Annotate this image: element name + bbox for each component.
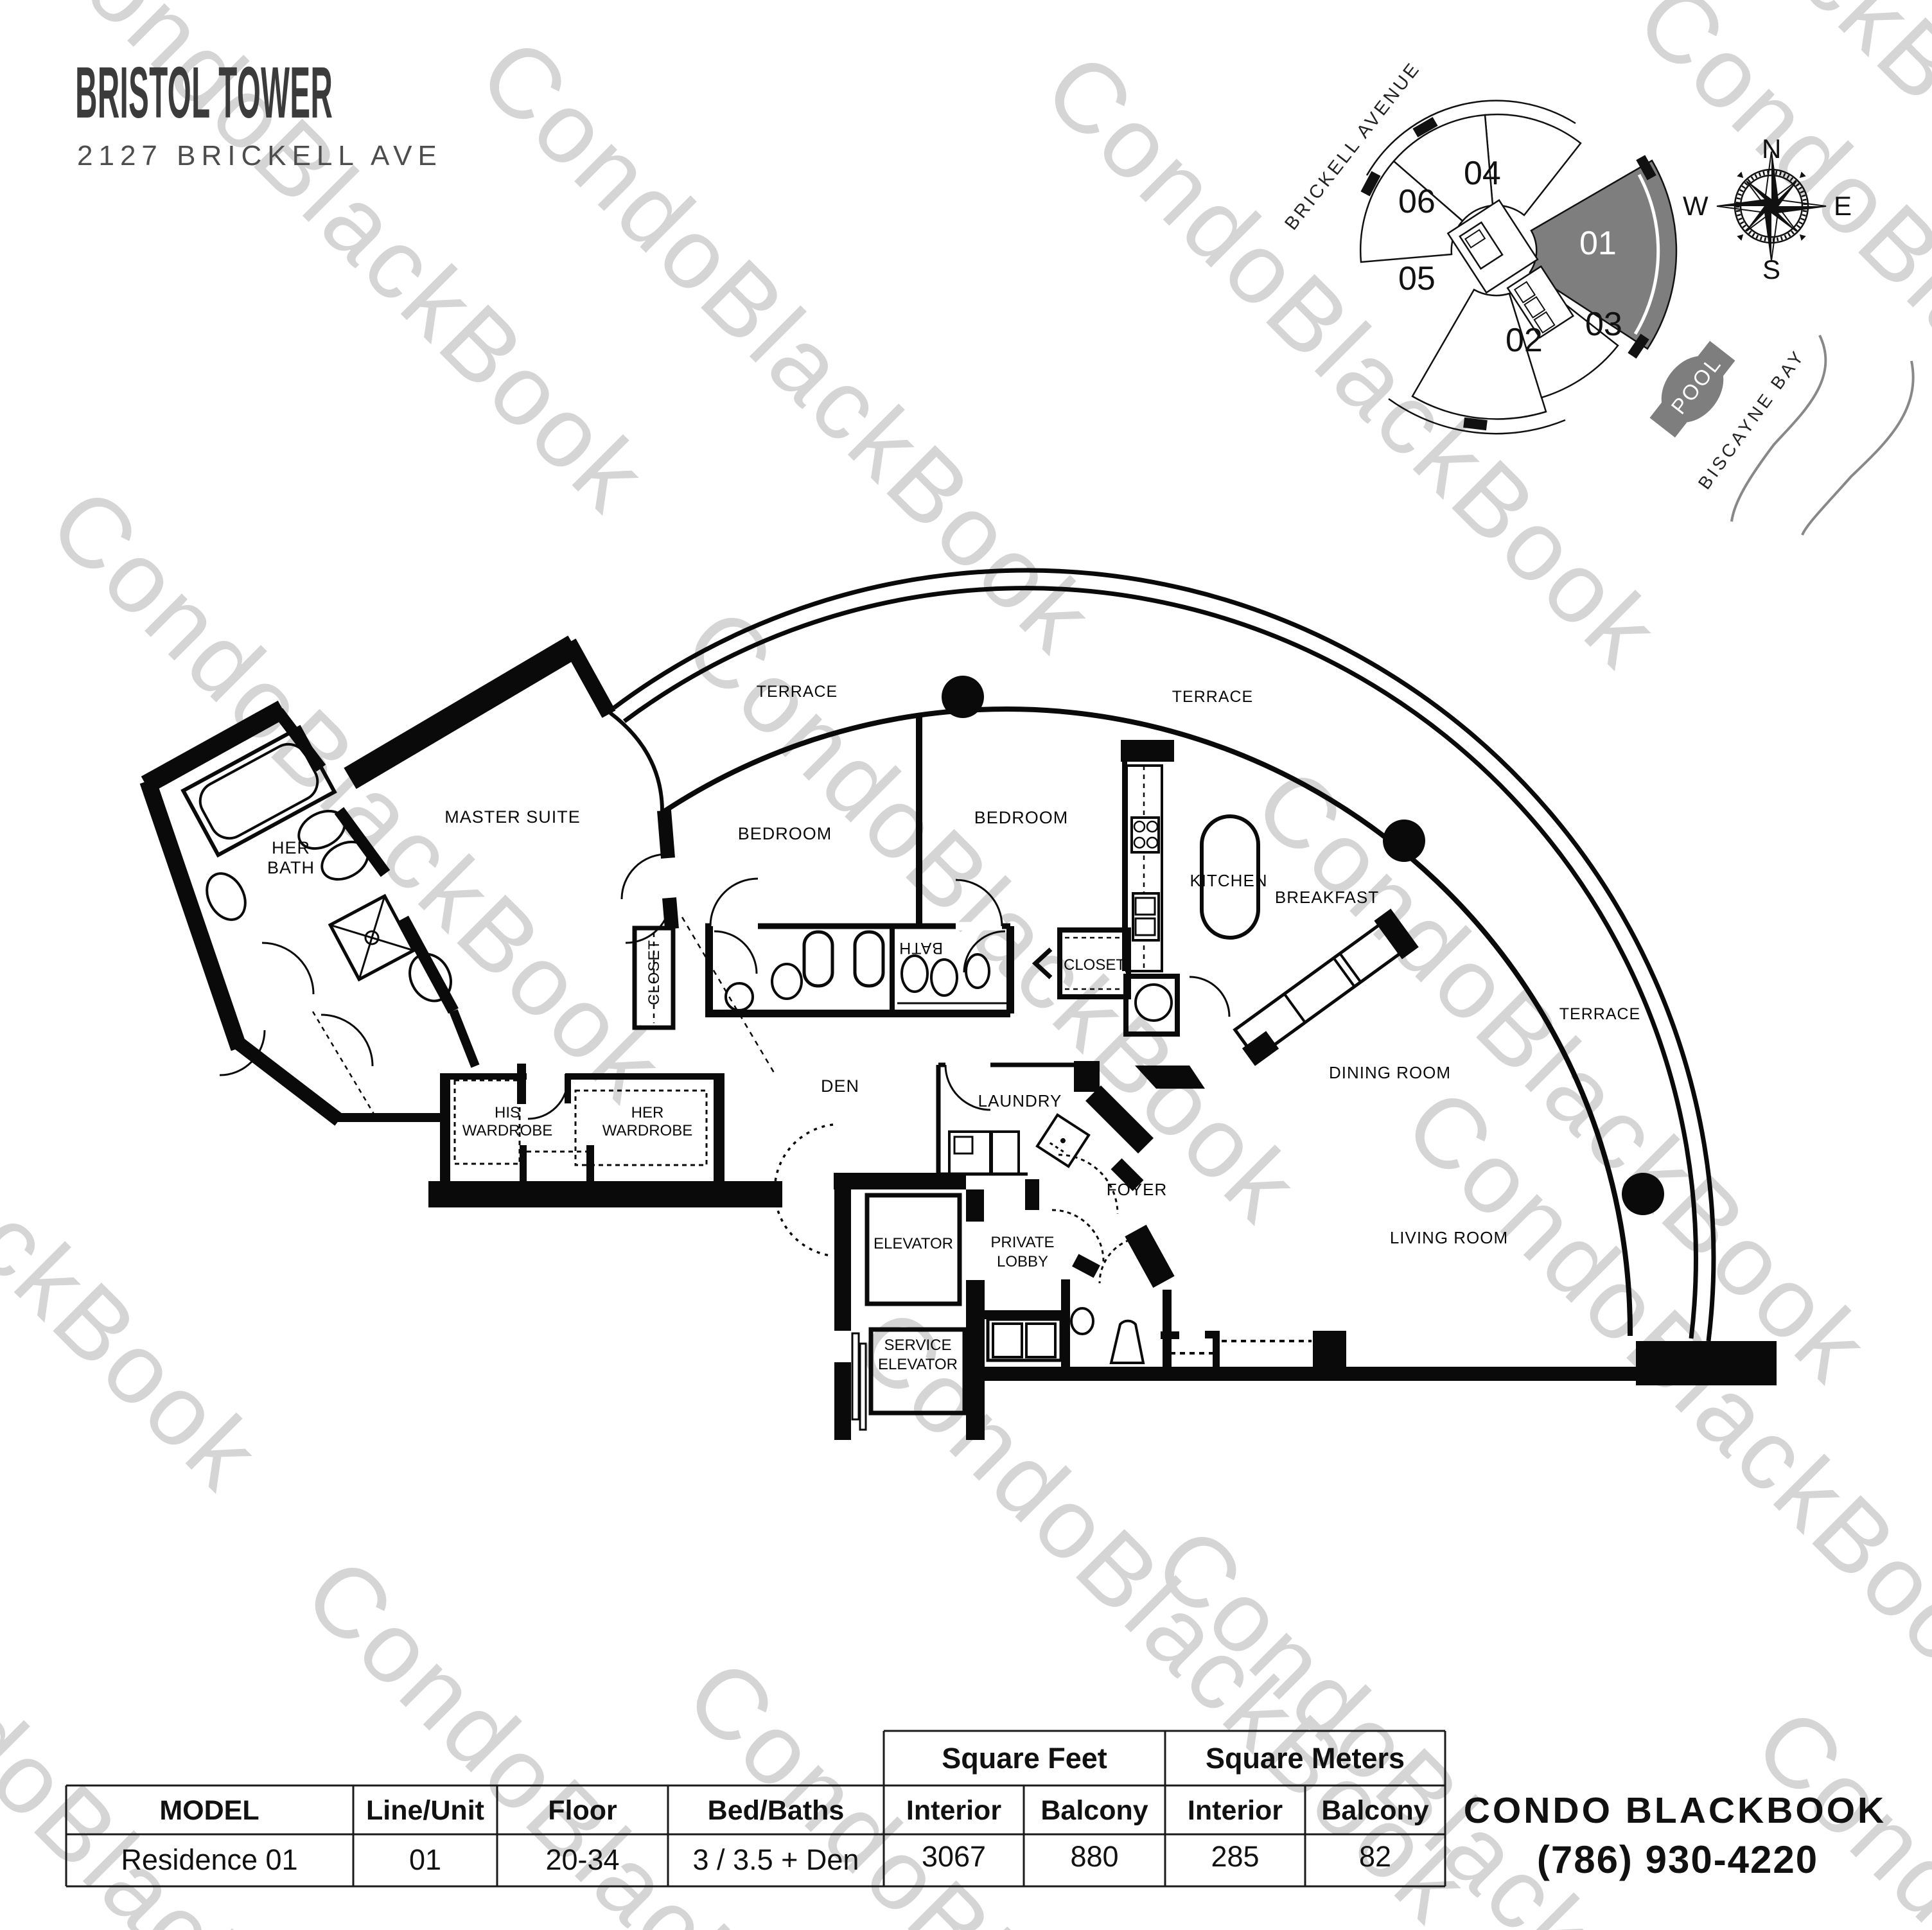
svg-text:BRISTOL TOWER: BRISTOL TOWER — [75, 53, 333, 134]
svg-text:01: 01 — [1579, 225, 1617, 262]
svg-text:05: 05 — [1398, 260, 1436, 297]
svg-text:06: 06 — [1398, 183, 1436, 220]
svg-text:Line/Unit: Line/Unit — [366, 1795, 484, 1826]
svg-text:BEDROOM: BEDROOM — [738, 824, 832, 843]
svg-text:ELEVATOR: ELEVATOR — [874, 1235, 953, 1252]
svg-text:LOBBY: LOBBY — [997, 1253, 1048, 1270]
svg-text:Floor: Floor — [548, 1795, 617, 1826]
svg-text:Balcony: Balcony — [1321, 1795, 1428, 1826]
svg-text:Interior: Interior — [1188, 1795, 1283, 1826]
svg-text:MASTER SUITE: MASTER SUITE — [444, 807, 581, 827]
svg-text:LIVING ROOM: LIVING ROOM — [1390, 1228, 1508, 1247]
svg-text:DEN: DEN — [821, 1076, 859, 1096]
svg-text:CLOSET: CLOSET — [1064, 956, 1125, 974]
svg-text:Interior: Interior — [906, 1795, 1001, 1826]
svg-text:CONDO BLACKBOOK: CONDO BLACKBOOK — [1464, 1790, 1886, 1831]
svg-text:01: 01 — [409, 1843, 441, 1876]
svg-text:04: 04 — [1464, 155, 1501, 192]
svg-text:3 / 3.5 + Den: 3 / 3.5 + Den — [693, 1843, 859, 1876]
svg-text:PRIVATE: PRIVATE — [990, 1234, 1054, 1251]
svg-text:HIS: HIS — [495, 1104, 520, 1121]
svg-text:DINING ROOM: DINING ROOM — [1329, 1063, 1451, 1082]
svg-text:Square Meters: Square Meters — [1206, 1742, 1405, 1775]
svg-text:Balcony: Balcony — [1041, 1795, 1148, 1826]
svg-text:WARDROBE: WARDROBE — [602, 1122, 692, 1139]
svg-text:N: N — [1762, 134, 1781, 164]
svg-text:TERRACE: TERRACE — [1172, 688, 1253, 706]
svg-text:BATH: BATH — [899, 939, 943, 957]
svg-text:MODEL: MODEL — [159, 1795, 259, 1826]
svg-text:3067: 3067 — [922, 1840, 986, 1873]
svg-text:Residence 01: Residence 01 — [121, 1843, 297, 1876]
svg-text:LAUNDRY: LAUNDRY — [978, 1091, 1062, 1110]
svg-text:CLOSET: CLOSET — [645, 940, 663, 1005]
svg-text:03: 03 — [1585, 306, 1622, 343]
svg-text:HER: HER — [272, 838, 310, 857]
svg-text:E: E — [1834, 191, 1852, 221]
svg-text:(786) 930-4220: (786) 930-4220 — [1537, 1838, 1818, 1881]
svg-text:BEDROOM: BEDROOM — [974, 808, 1069, 827]
svg-text:02: 02 — [1506, 322, 1543, 359]
svg-text:TERRACE: TERRACE — [1559, 1005, 1640, 1023]
svg-text:HER: HER — [631, 1104, 664, 1121]
svg-text:880: 880 — [1070, 1840, 1118, 1873]
svg-text:82: 82 — [1359, 1840, 1391, 1873]
svg-text:20-34: 20-34 — [545, 1843, 619, 1876]
svg-text:Bed/Baths: Bed/Baths — [708, 1795, 845, 1826]
svg-text:Square Feet: Square Feet — [942, 1742, 1107, 1775]
svg-text:TERRACE: TERRACE — [757, 683, 838, 701]
svg-text:WARDROBE: WARDROBE — [462, 1122, 552, 1139]
svg-text:ELEVATOR: ELEVATOR — [878, 1356, 958, 1373]
svg-text:285: 285 — [1211, 1840, 1259, 1873]
svg-text:FOYER: FOYER — [1107, 1180, 1168, 1199]
svg-text:BREAKFAST: BREAKFAST — [1275, 888, 1379, 907]
svg-text:BATH: BATH — [267, 858, 315, 877]
svg-text:SERVICE: SERVICE — [884, 1337, 952, 1354]
svg-text:W: W — [1683, 191, 1708, 221]
svg-text:S: S — [1762, 254, 1780, 285]
svg-text:KITCHEN: KITCHEN — [1190, 871, 1267, 890]
svg-text:2127 BRICKELL AVE: 2127 BRICKELL AVE — [77, 140, 443, 171]
